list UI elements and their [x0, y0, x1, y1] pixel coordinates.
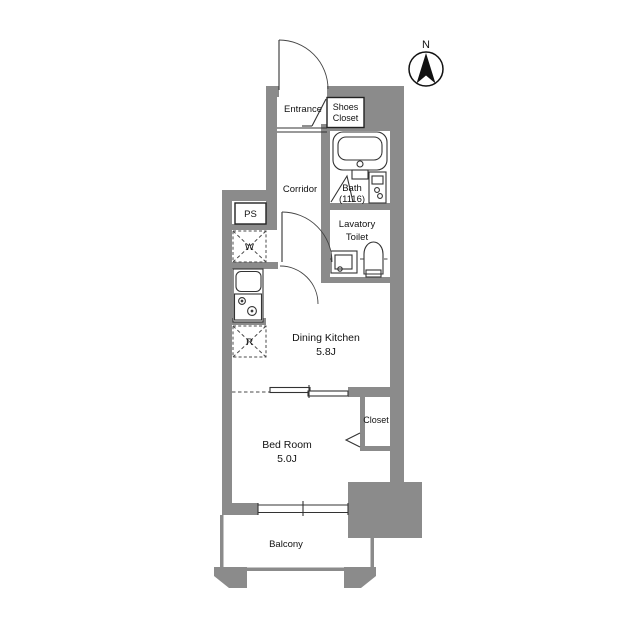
pier-right — [344, 567, 376, 588]
north-compass-icon: N — [409, 39, 443, 86]
kitchen-counter — [233, 269, 263, 322]
closet-door — [346, 433, 360, 447]
floor-plan-drawing: N Entrance Shoes Closet Corridor Bath (1… — [0, 0, 640, 640]
room-label-corridor: Corridor — [283, 184, 317, 195]
lavatory-door-swing — [280, 266, 318, 304]
lavatory-toilet-room — [280, 242, 390, 304]
room-label-shoes-closet-1: Shoes — [333, 102, 359, 112]
room-label-bedroom: Bed Room — [262, 439, 312, 451]
room-label-balcony: Balcony — [269, 539, 303, 550]
room-label-lavatory-2: Toilet — [346, 232, 369, 243]
balcony-window — [258, 501, 348, 516]
kitchen-sink — [236, 272, 261, 292]
compass-north-label: N — [422, 39, 430, 51]
room-label-shoes-closet-2: Closet — [333, 113, 359, 123]
washbasin — [331, 251, 357, 273]
entrance-area — [277, 40, 328, 132]
pier-left — [214, 567, 247, 588]
room-label-bath-size: (1116) — [339, 194, 365, 205]
room-label-dining-kitchen-size: 5.8J — [316, 346, 336, 358]
bath-counter — [369, 172, 386, 203]
room-label-washer: W — [245, 242, 254, 253]
toilet — [364, 242, 383, 277]
entrance-door-swing — [279, 40, 328, 89]
sliding-door — [232, 385, 348, 398]
room-label-entrance: Entrance — [284, 104, 322, 115]
room-label-closet: Closet — [363, 415, 389, 425]
room-label-refrigerator: R — [246, 337, 253, 348]
room-label-lavatory-1: Lavatory — [339, 219, 376, 230]
room-label-ps: PS — [244, 209, 257, 220]
room-label-bedroom-size: 5.0J — [277, 453, 297, 465]
room-label-bath: Bath — [342, 183, 362, 194]
floor-plan-page: N Entrance Shoes Closet Corridor Bath (1… — [0, 0, 640, 640]
room-label-dining-kitchen: Dining Kitchen — [292, 332, 360, 344]
